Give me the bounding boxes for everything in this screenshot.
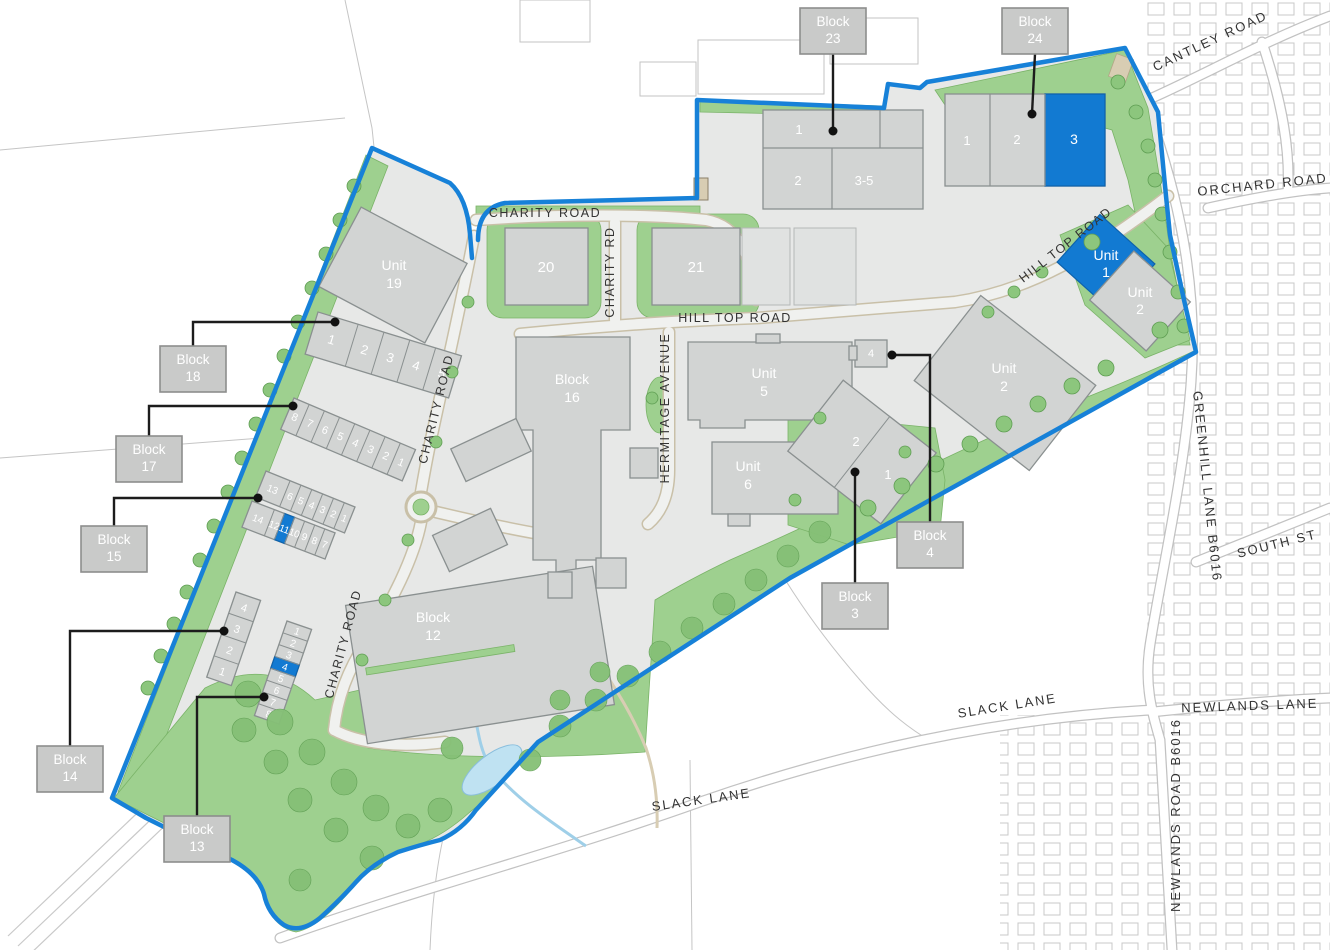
- unit-6-label: 6: [744, 476, 752, 492]
- unit-1-hilltop-label: Unit: [1094, 247, 1119, 263]
- svg-text:15: 15: [106, 549, 121, 564]
- callout-block-24[interactable]: Block 24: [1002, 8, 1068, 54]
- callout-block-23[interactable]: Block 23: [800, 8, 866, 54]
- unit-2-hilltop-label: 2: [1136, 301, 1144, 317]
- svg-text:Block: Block: [132, 442, 165, 457]
- unit-20-label: 20: [538, 259, 555, 276]
- svg-text:Block: Block: [1018, 14, 1051, 29]
- parcel: [794, 228, 856, 305]
- unit-2-east-label: 2: [1000, 378, 1008, 394]
- road-label-newlands-road: NEWLANDS ROAD B6016: [1168, 718, 1183, 912]
- svg-text:Block: Block: [913, 528, 946, 543]
- unit-2-hilltop-label: Unit: [1128, 284, 1153, 300]
- block-4-unit: 4: [868, 348, 874, 360]
- svg-text:4: 4: [926, 545, 934, 560]
- unit-2-east-label: Unit: [992, 360, 1017, 376]
- svg-text:24: 24: [1027, 31, 1043, 46]
- road-label-charity-road-top: CHARITY ROAD: [489, 206, 601, 220]
- callout-block-17[interactable]: Block 17: [116, 436, 182, 482]
- block-24-unit: 2: [1013, 132, 1020, 147]
- callout-block-14[interactable]: Block 14: [37, 746, 103, 792]
- road-label-charity-rd: CHARITY RD: [603, 226, 617, 317]
- unit-19-label: Unit: [382, 257, 407, 273]
- callout-block-4[interactable]: Block 4: [897, 522, 963, 568]
- svg-text:18: 18: [185, 369, 200, 384]
- svg-text:13: 13: [189, 839, 204, 854]
- unit-5-label: 5: [760, 383, 768, 399]
- unit-5-label: Unit: [752, 365, 777, 381]
- svg-text:Block: Block: [180, 822, 213, 837]
- callout-block-15[interactable]: Block 15: [81, 526, 147, 572]
- block-16-label: 16: [564, 389, 580, 405]
- site-masterplan-map: 1 2 3 4 5 8 7 6 5 4 3 2 1 13 6 5 4 3 2 1…: [0, 0, 1330, 950]
- block-12-label: 12: [425, 627, 441, 643]
- road-label-hill-top-road: HILL TOP ROAD: [678, 311, 792, 325]
- svg-text:23: 23: [825, 31, 840, 46]
- building-block-23[interactable]: [763, 110, 923, 209]
- block-23-unit: 1: [795, 122, 802, 137]
- parcel: [742, 228, 790, 305]
- callout-block-18[interactable]: Block 18: [160, 346, 226, 392]
- callout-block-3[interactable]: Block 3: [822, 583, 888, 629]
- unit-6-label: Unit: [736, 458, 761, 474]
- road-label-hermitage-avenue: HERMITAGE AVENUE: [658, 333, 672, 484]
- block-24-unit: 1: [963, 133, 970, 148]
- block-24-unit: 3: [1070, 131, 1078, 147]
- svg-text:Block: Block: [53, 752, 86, 767]
- block-23-unit: 2: [794, 173, 801, 188]
- block-12-label: Block: [416, 609, 451, 625]
- block-3-unit: 2: [852, 434, 859, 449]
- block-3-unit: 1: [884, 467, 891, 482]
- svg-text:17: 17: [141, 459, 156, 474]
- svg-text:Block: Block: [97, 532, 130, 547]
- callout-block-13[interactable]: Block 13: [164, 816, 230, 862]
- svg-text:Block: Block: [176, 352, 209, 367]
- block-16-label: Block: [555, 371, 590, 387]
- unit-21-label: 21: [688, 259, 705, 276]
- road-label-slack-lane-south: SLACK LANE: [651, 785, 752, 814]
- block-23-unit: 3-5: [855, 173, 874, 188]
- svg-text:Block: Block: [816, 14, 849, 29]
- svg-text:3: 3: [851, 606, 859, 621]
- svg-text:Block: Block: [838, 589, 871, 604]
- svg-text:14: 14: [62, 769, 78, 784]
- unit-1-hilltop-label: 1: [1102, 264, 1110, 280]
- unit-19-label: 19: [386, 275, 402, 291]
